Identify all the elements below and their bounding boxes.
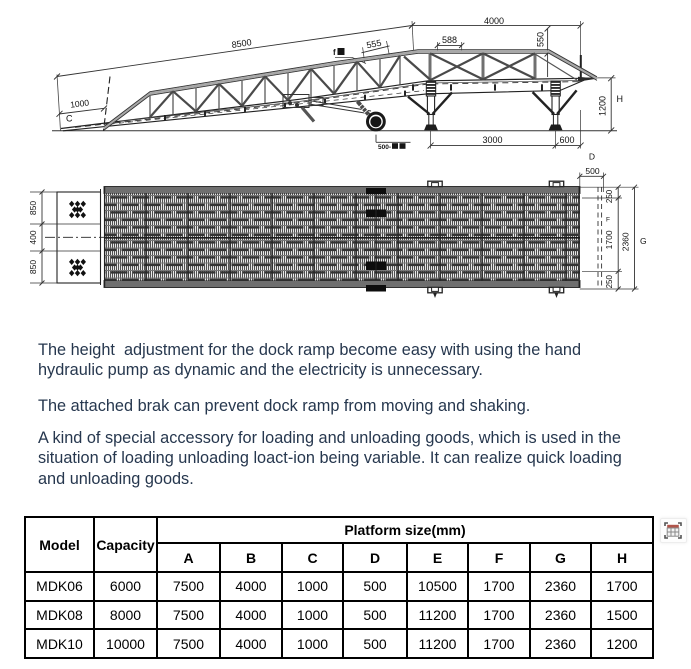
svg-text:588: 588 <box>442 35 457 45</box>
svg-text:8500: 8500 <box>231 37 252 50</box>
svg-text:G: G <box>640 236 647 246</box>
svg-text:4000: 4000 <box>484 16 504 26</box>
svg-text:850: 850 <box>28 201 38 215</box>
svg-text:2360: 2360 <box>620 232 630 251</box>
svg-text:550: 550 <box>536 32 546 47</box>
svg-text:f: f <box>333 48 336 57</box>
svg-text:F: F <box>606 217 610 224</box>
svg-text:250: 250 <box>605 189 614 203</box>
svg-text:500: 500 <box>585 166 599 176</box>
svg-text:600: 600 <box>559 135 574 145</box>
svg-text:250: 250 <box>605 274 614 288</box>
svg-text:3000: 3000 <box>482 135 502 145</box>
svg-text:400: 400 <box>28 230 38 244</box>
svg-text:500-: 500- <box>378 144 391 151</box>
svg-text:1000: 1000 <box>70 97 90 109</box>
svg-text:D: D <box>589 152 595 162</box>
svg-text:1200: 1200 <box>598 96 608 116</box>
svg-text:H: H <box>617 94 624 104</box>
svg-text:1700: 1700 <box>604 230 614 249</box>
svg-text:850: 850 <box>28 260 38 274</box>
svg-text:C: C <box>66 114 73 124</box>
